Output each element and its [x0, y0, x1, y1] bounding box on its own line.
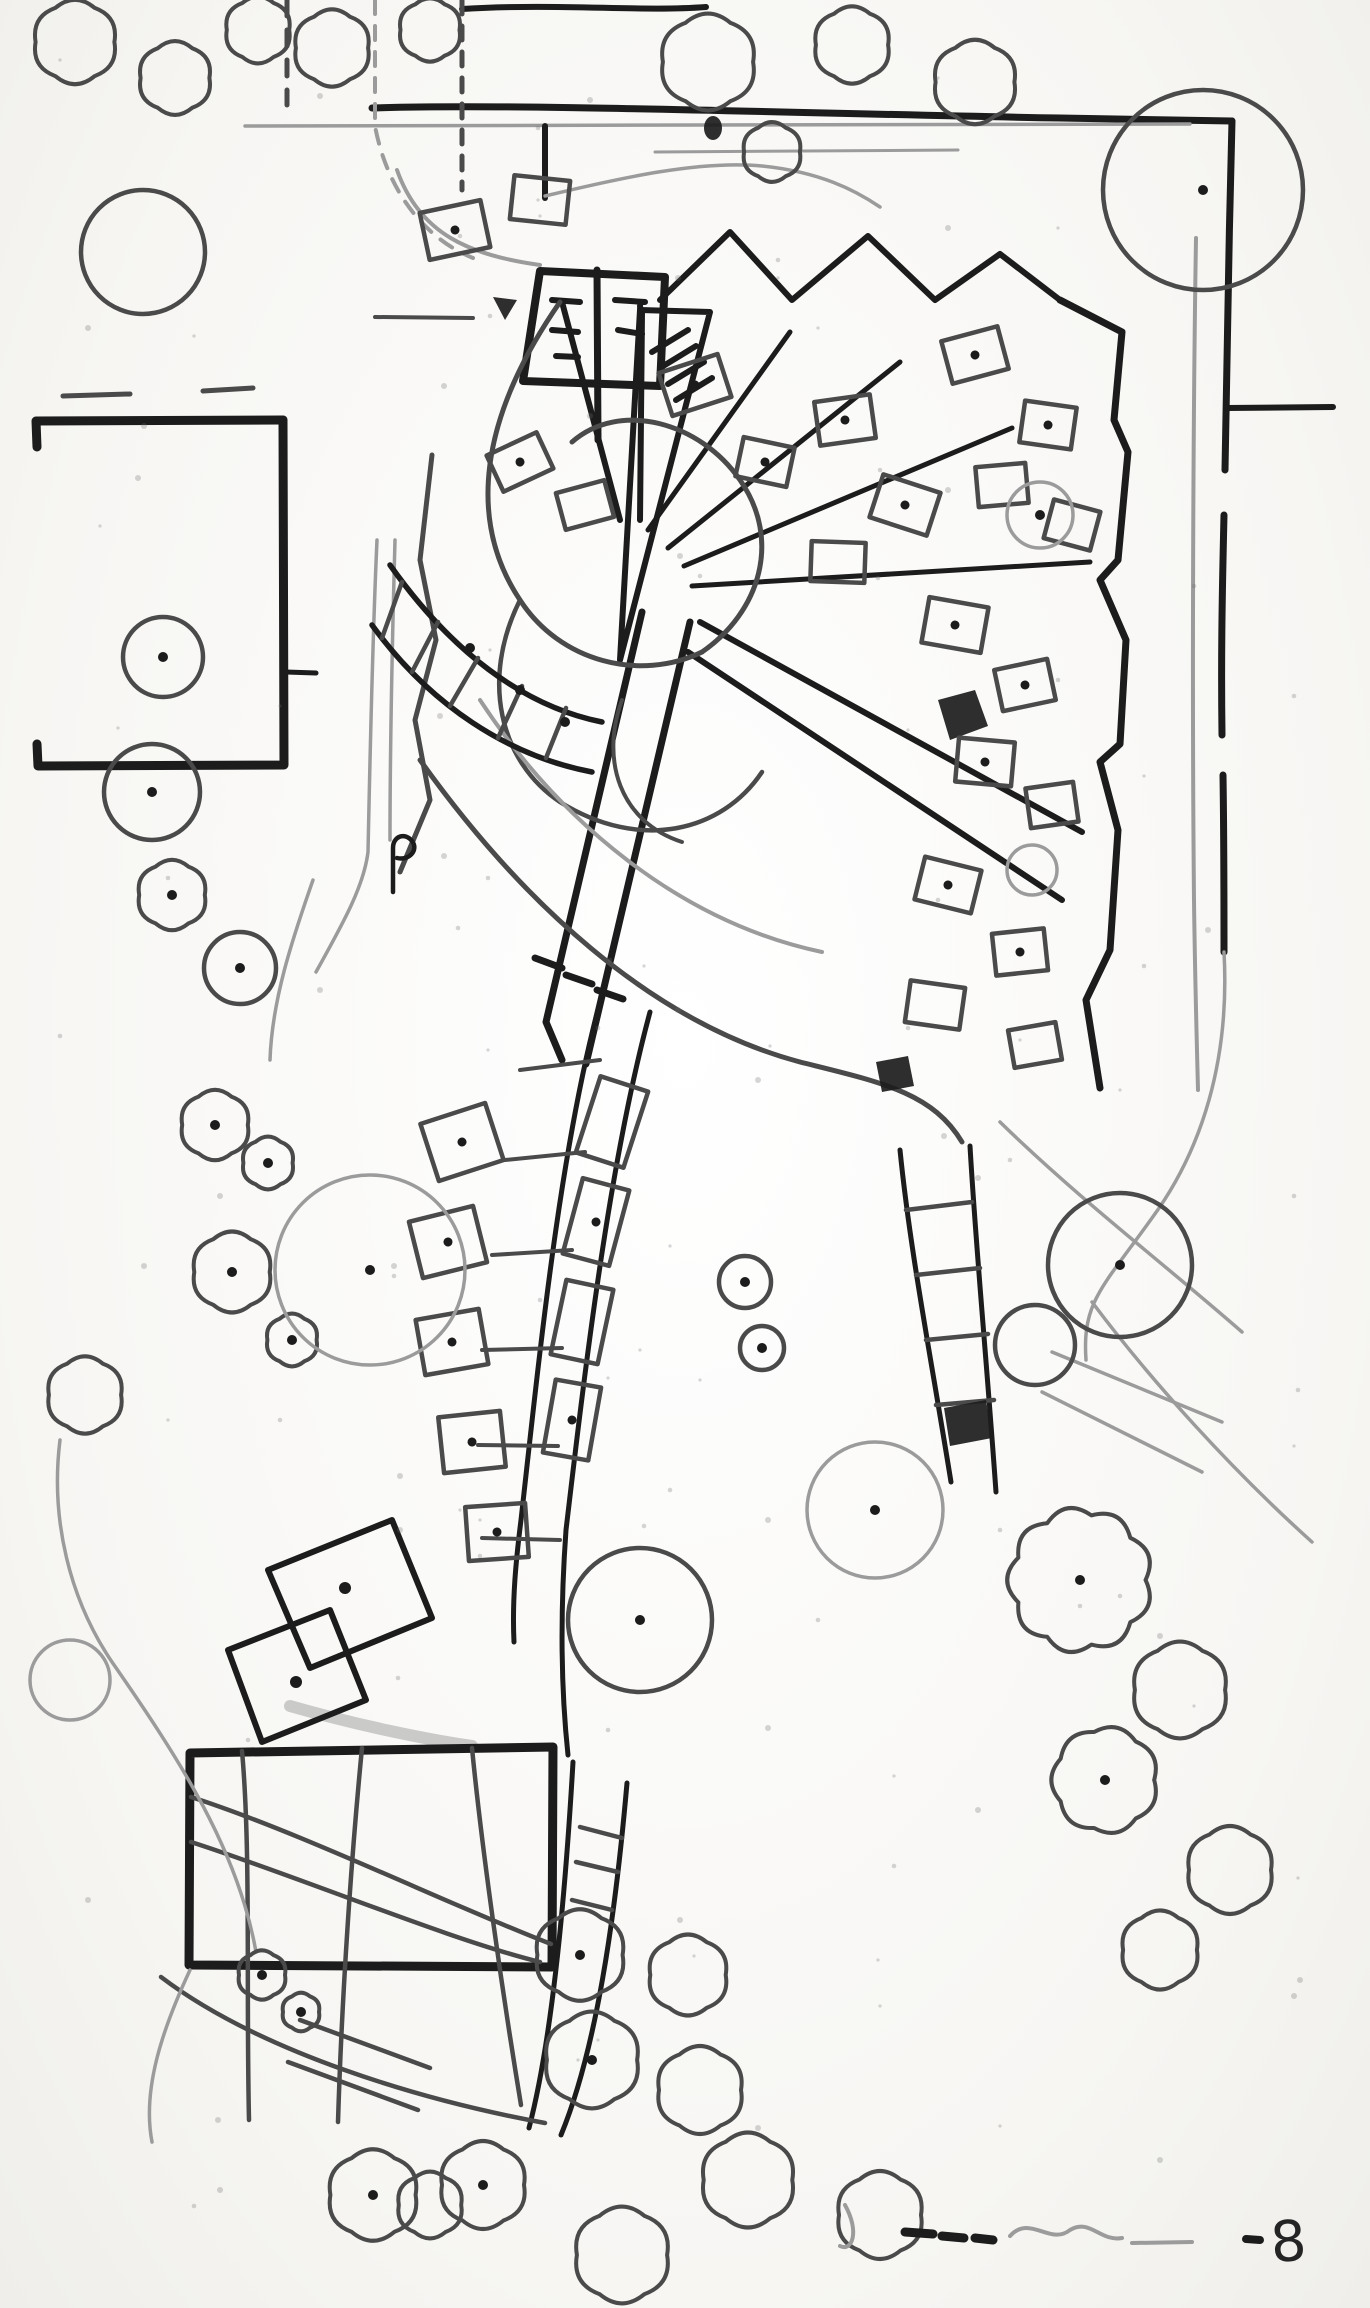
tree — [568, 1548, 712, 1692]
building-unit — [551, 1280, 614, 1364]
tree — [1188, 1826, 1271, 1914]
tree — [400, 0, 460, 62]
tree — [194, 1232, 271, 1313]
tree — [123, 617, 203, 697]
building-unit — [870, 474, 941, 535]
tree — [48, 1356, 121, 1433]
north-building — [375, 170, 665, 440]
signature-mark-8: 8 — [1268, 2209, 1308, 2276]
building-unit — [921, 597, 988, 653]
tree — [139, 860, 206, 930]
building-unit — [735, 437, 794, 487]
tree — [182, 1090, 249, 1160]
tree — [398, 2172, 461, 2239]
tree — [104, 744, 200, 840]
tree — [1122, 1910, 1197, 1989]
tree — [995, 1305, 1075, 1385]
building-unit — [543, 1380, 601, 1461]
tree — [81, 190, 205, 314]
building-unit — [975, 463, 1028, 507]
building-unit — [420, 1103, 503, 1181]
tree — [658, 2046, 741, 2134]
tree — [1048, 1193, 1192, 1337]
building-unit — [1008, 1022, 1062, 1068]
building-unit — [915, 857, 982, 914]
tree — [1007, 482, 1073, 548]
tree — [1007, 1508, 1150, 1652]
orchard-grid-rectangle — [149, 1747, 553, 2142]
se-ladder-path — [900, 1146, 996, 1492]
row-end-blocks — [228, 1520, 432, 1742]
west-field-rectangle — [36, 388, 316, 766]
tree — [807, 1442, 943, 1578]
tree — [140, 41, 210, 115]
tree — [243, 1137, 293, 1190]
tree — [1051, 1727, 1156, 1833]
site-plan-sketch-sheet: 8 — [0, 0, 1370, 2308]
building-unit — [905, 980, 965, 1029]
tree — [30, 1640, 110, 1720]
tree — [1134, 1642, 1226, 1739]
signature-scribble: 8 — [840, 2205, 1309, 2276]
building-unit — [941, 326, 1008, 384]
building-unit — [576, 1076, 648, 1168]
tree — [226, 0, 289, 63]
building-unit — [563, 1178, 630, 1266]
building-unit — [438, 1411, 506, 1473]
tree — [204, 932, 276, 1004]
building-unit — [994, 659, 1056, 711]
building-unit — [814, 394, 876, 445]
building-unit — [992, 928, 1048, 975]
tree — [719, 1256, 771, 1308]
west-fan-terrace — [372, 565, 602, 772]
central-building-cluster — [316, 170, 1128, 1142]
building-unit — [1019, 401, 1076, 450]
tree — [935, 40, 1015, 125]
tree — [650, 1935, 727, 2016]
tree — [662, 14, 754, 111]
building-unit — [556, 480, 614, 530]
tree — [35, 0, 115, 84]
tree — [703, 2133, 793, 2228]
site-plan-sketch: 8 — [0, 0, 1370, 2308]
tree — [275, 1175, 465, 1365]
tree — [295, 9, 368, 86]
tree — [740, 1326, 784, 1370]
tree — [576, 2207, 668, 2304]
tree — [283, 1993, 320, 2032]
site-boundary — [245, 0, 1333, 1360]
tree — [815, 6, 888, 83]
